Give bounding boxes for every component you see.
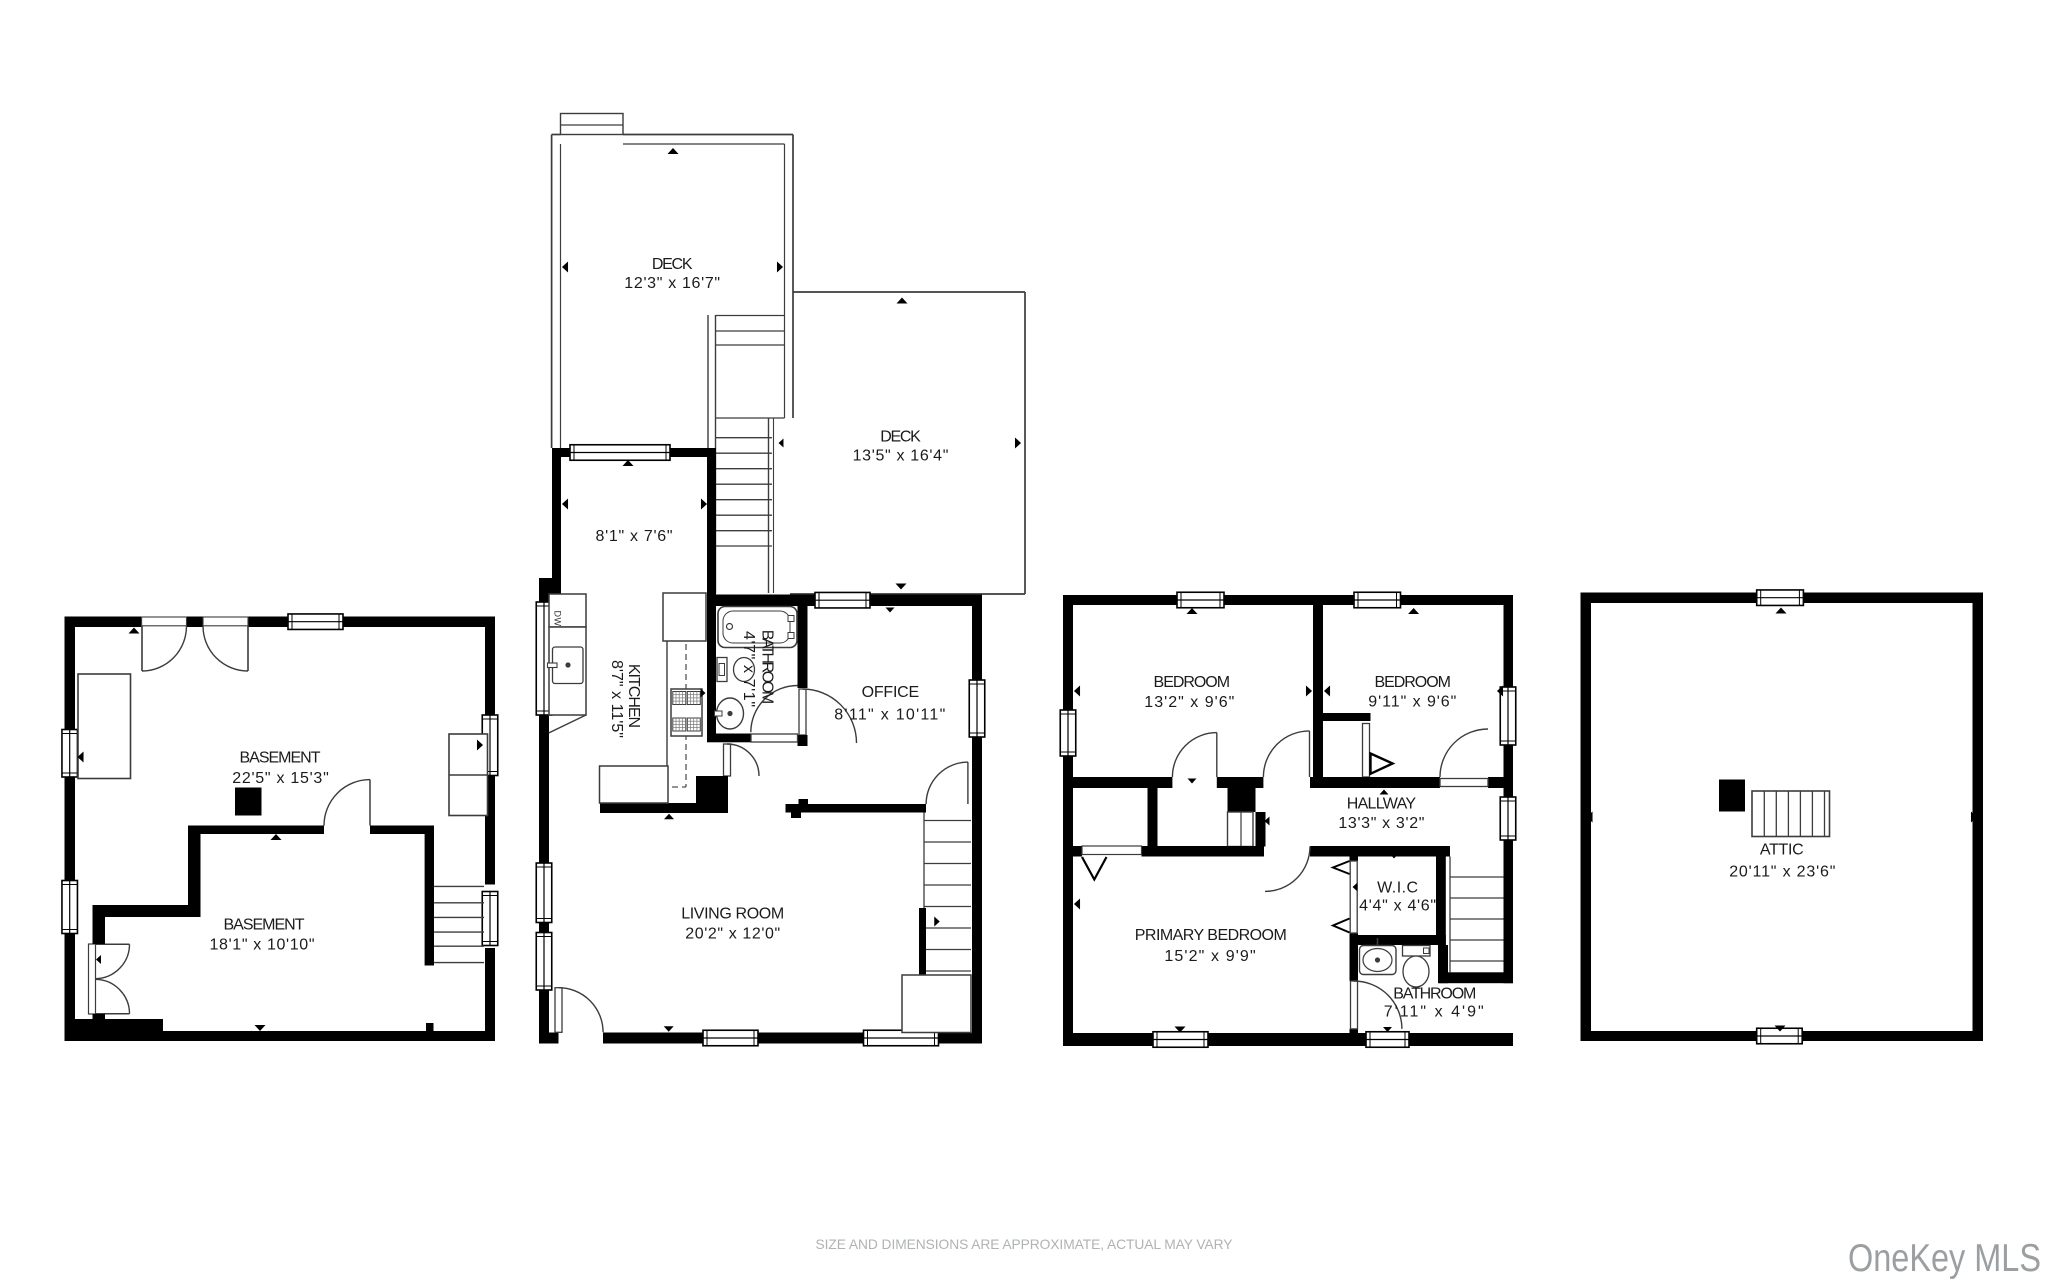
svg-text:18'1" x 10'10": 18'1" x 10'10" <box>210 936 315 953</box>
svg-text:DECK: DECK <box>652 256 693 273</box>
svg-text:22'5" x 15'3": 22'5" x 15'3" <box>232 770 329 787</box>
svg-text:13'2" x 9'6": 13'2" x 9'6" <box>1144 694 1234 711</box>
svg-text:12'3" x 16'7": 12'3" x 16'7" <box>624 275 720 292</box>
svg-text:20'11" x 23'6": 20'11" x 23'6" <box>1729 864 1835 881</box>
svg-text:8'11" x 10'11": 8'11" x 10'11" <box>834 706 945 723</box>
svg-text:8'7" x 11'5": 8'7" x 11'5" <box>608 660 625 738</box>
svg-text:BEDROOM: BEDROOM <box>1154 674 1231 691</box>
svg-text:KITCHEN: KITCHEN <box>625 664 642 728</box>
svg-text:SIZE AND DIMENSIONS ARE APPROX: SIZE AND DIMENSIONS ARE APPROXIMATE, ACT… <box>816 1237 1233 1252</box>
svg-text:BATHROOM: BATHROOM <box>758 630 775 705</box>
svg-text:W.I.C: W.I.C <box>1377 879 1418 896</box>
svg-text:8'1" x 7'6": 8'1" x 7'6" <box>596 528 673 545</box>
svg-text:13'5" x 16'4": 13'5" x 16'4" <box>853 447 949 464</box>
svg-text:OFFICE: OFFICE <box>862 684 920 701</box>
svg-text:HALLWAY: HALLWAY <box>1347 795 1417 812</box>
svg-text:4'4" x 4'6": 4'4" x 4'6" <box>1359 898 1436 915</box>
svg-text:OneKey MLS: OneKey MLS <box>1848 1237 2041 1279</box>
svg-text:DECK: DECK <box>880 428 921 445</box>
svg-text:LIVING ROOM: LIVING ROOM <box>681 905 784 922</box>
svg-text:9'11" x 9'6": 9'11" x 9'6" <box>1368 694 1456 711</box>
svg-text:20'2" x 12'0": 20'2" x 12'0" <box>685 926 780 943</box>
svg-text:PRIMARY BEDROOM: PRIMARY BEDROOM <box>1135 927 1287 944</box>
svg-text:DW: DW <box>553 611 563 627</box>
svg-text:BASEMENT: BASEMENT <box>240 749 321 766</box>
svg-text:BASEMENT: BASEMENT <box>224 917 305 934</box>
svg-text:BATHROOM: BATHROOM <box>1393 985 1476 1002</box>
svg-text:4'7" x 7'1": 4'7" x 7'1" <box>740 631 757 707</box>
svg-text:BEDROOM: BEDROOM <box>1374 674 1451 691</box>
svg-text:ATTIC: ATTIC <box>1760 842 1804 859</box>
svg-text:13'3" x 3'2": 13'3" x 3'2" <box>1338 815 1424 832</box>
